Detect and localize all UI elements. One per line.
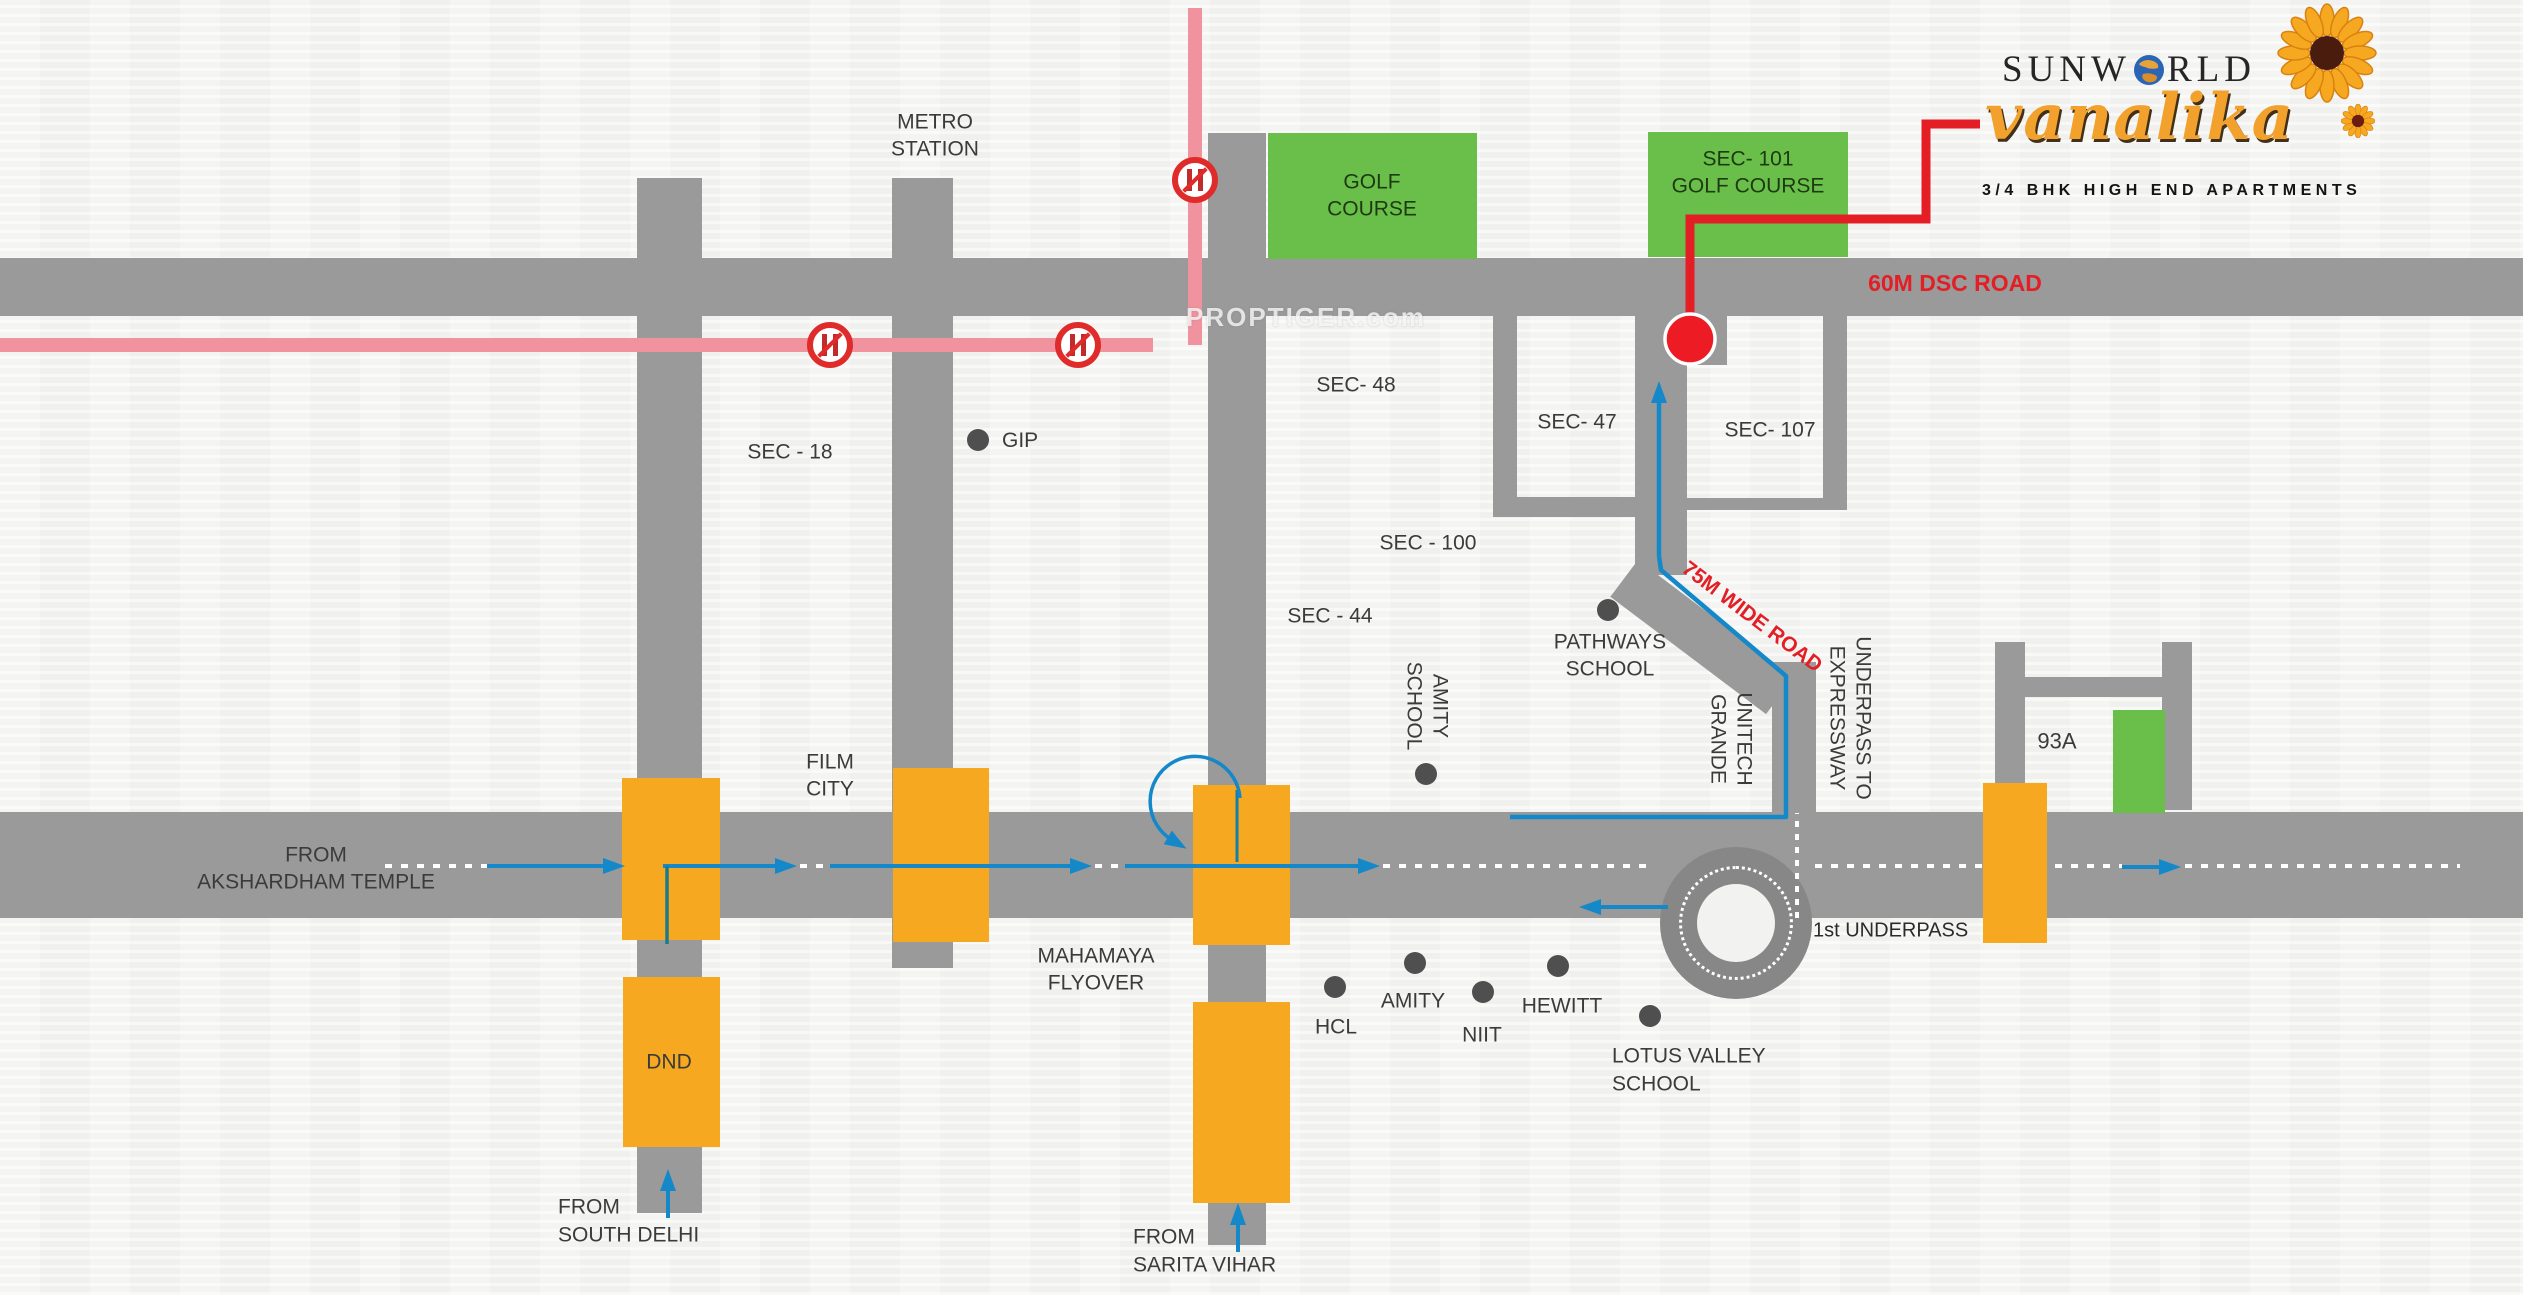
underpass-dotted-path — [1795, 813, 1799, 918]
sunflower-icon — [2277, 3, 2377, 103]
hewitt-dot-icon — [1547, 955, 1569, 977]
niit-label: NIIT — [1462, 1021, 1502, 1048]
hcl-dot-icon — [1324, 976, 1346, 998]
lane-dots — [2185, 864, 2460, 868]
from-sarita-vihar-label: FROM SARITA VIHAR — [1133, 1224, 1276, 1281]
metro-station-label: METRO STATION — [891, 109, 979, 164]
dnd-label: DND — [646, 1048, 692, 1075]
no-entry-icon — [1172, 157, 1218, 203]
lane-dots — [1815, 864, 2122, 868]
intersection-akshardham — [622, 778, 720, 940]
no-entry-icon — [1055, 322, 1101, 368]
lane-dots — [1383, 864, 1655, 868]
sec47-west-road — [1493, 316, 1517, 517]
amity-school-dot-icon — [1415, 763, 1437, 785]
intersection-mahamaya — [1193, 785, 1290, 945]
intersection-93a — [1983, 783, 2047, 943]
mahamaya-flyover-label: MAHAMAYA FLYOVER — [1037, 943, 1154, 998]
lane-dots — [800, 864, 830, 868]
hcl-label: HCL — [1315, 1013, 1357, 1040]
from-south-delhi-label: FROM SOUTH DELHI — [558, 1194, 699, 1251]
amity-label: AMITY — [1381, 987, 1445, 1014]
logo-name: vanalika — [1985, 80, 2294, 155]
sec47-south-road — [1493, 497, 1635, 517]
green-area-93a — [2113, 710, 2165, 813]
sec93a-west-road — [1995, 642, 2025, 783]
underpass-expressway-label: UNDERPASS TO EXPRESSWAY — [1823, 636, 1876, 799]
pink-road-horizontal — [0, 338, 1153, 352]
watermark: PROPTIGER.com — [1186, 302, 1426, 333]
sec18-label: SEC - 18 — [747, 438, 832, 465]
gip-dot-icon — [967, 429, 989, 451]
sec93a-east-road — [2162, 642, 2192, 810]
pathways-school-label: PATHWAYS SCHOOL — [1554, 629, 1666, 684]
sec100-label: SEC - 100 — [1380, 529, 1477, 556]
first-underpass-label: 1st UNDERPASS — [1813, 918, 1968, 945]
intersection-film-city — [893, 768, 989, 942]
sec47-east-road — [1635, 316, 1727, 365]
lotus-valley-label: LOTUS VALLEY SCHOOL — [1612, 1043, 1766, 1100]
route-75m-road-upper — [1635, 365, 1687, 575]
logo-tagline: 3/4 BHK HIGH END APARTMENTS — [1982, 182, 2361, 200]
lotus-dot-icon — [1639, 1005, 1661, 1027]
niit-dot-icon — [1472, 981, 1494, 1003]
sec101-label: SEC- 101 GOLF COURSE — [1672, 146, 1825, 201]
sarita-vihar-block — [1193, 1002, 1290, 1203]
sec44-label: SEC - 44 — [1287, 602, 1372, 629]
sunflower-small-icon — [2341, 104, 2375, 138]
sec93a-north-road — [2025, 677, 2162, 697]
amity-dot-icon — [1404, 952, 1426, 974]
sec107-east-road — [1823, 316, 1847, 510]
sec107-label: SEC- 107 — [1724, 416, 1815, 443]
location-map: PROPTIGER.com — [0, 0, 2523, 1295]
amity-school-label: AMITY SCHOOL — [1400, 662, 1453, 751]
route-75m-road-lower — [1772, 662, 1816, 814]
unitech-grande-label: UNITECH GRANDE — [1704, 692, 1757, 785]
pathways-dot-icon — [1597, 599, 1619, 621]
sec47-label: SEC- 47 — [1537, 408, 1616, 435]
hewitt-label: HEWITT — [1522, 992, 1602, 1019]
sec48-label: SEC- 48 — [1316, 371, 1395, 398]
no-entry-icon — [807, 322, 853, 368]
roundabout-island — [1697, 884, 1775, 962]
from-akshardham-label: FROM AKSHARDHAM TEMPLE — [197, 842, 435, 897]
sec93a-label: 93A — [2037, 728, 2076, 757]
lane-dots — [1095, 864, 1125, 868]
film-city-label: FILM CITY — [806, 749, 854, 804]
gip-label: GIP — [1002, 427, 1038, 455]
dsc-road-label: 60M DSC ROAD — [1868, 269, 2042, 299]
golf-course-label: GOLF COURSE — [1327, 169, 1417, 224]
